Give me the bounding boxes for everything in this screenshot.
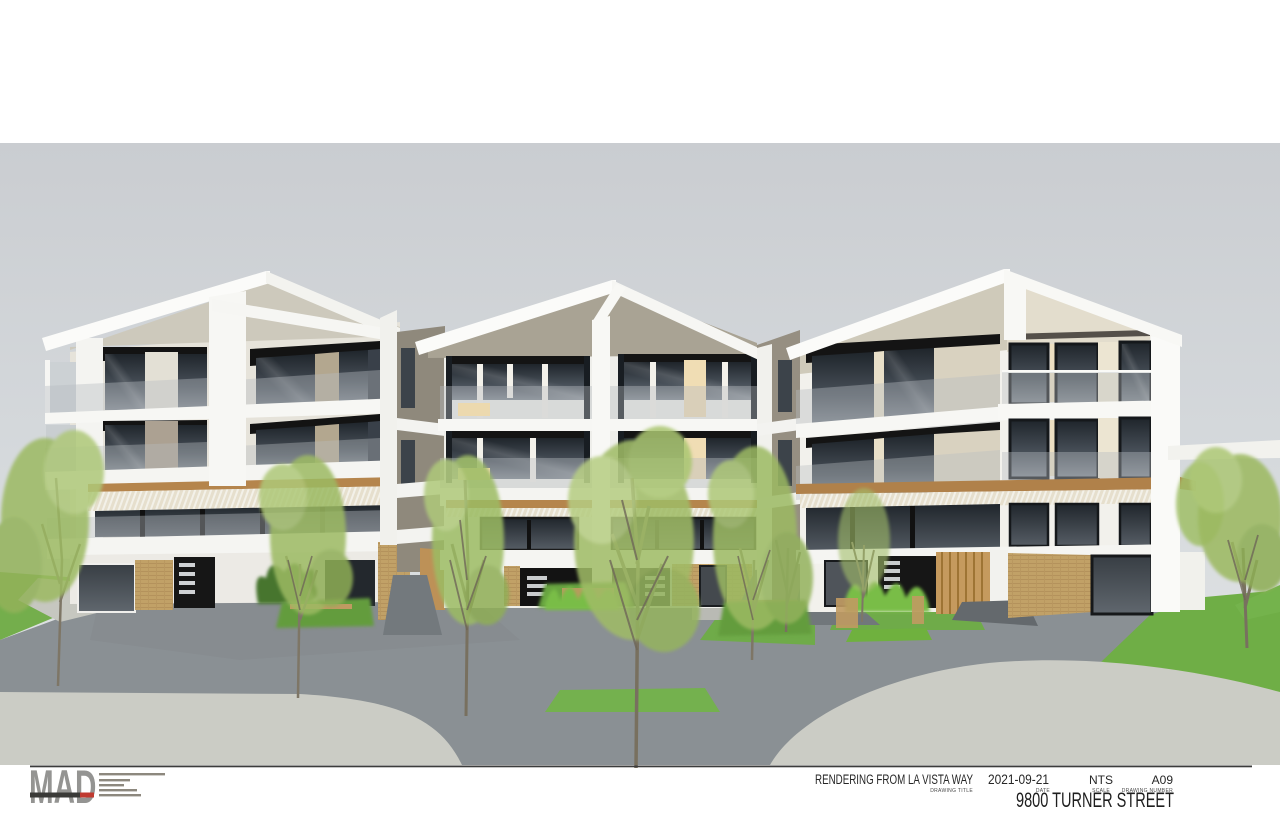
svg-text:RENDERING FROM LA VISTA WAY: RENDERING FROM LA VISTA WAY: [815, 772, 973, 787]
svg-text:A09: A09: [1152, 773, 1174, 787]
svg-text:2021-09-21: 2021-09-21: [988, 772, 1049, 787]
svg-text:NTS: NTS: [1089, 773, 1113, 787]
svg-text:DRAWING TITLE: DRAWING TITLE: [930, 788, 973, 794]
svg-text:9800 TURNER STREET: 9800 TURNER STREET: [1016, 789, 1174, 812]
svg-text:MAD: MAD: [29, 761, 96, 814]
